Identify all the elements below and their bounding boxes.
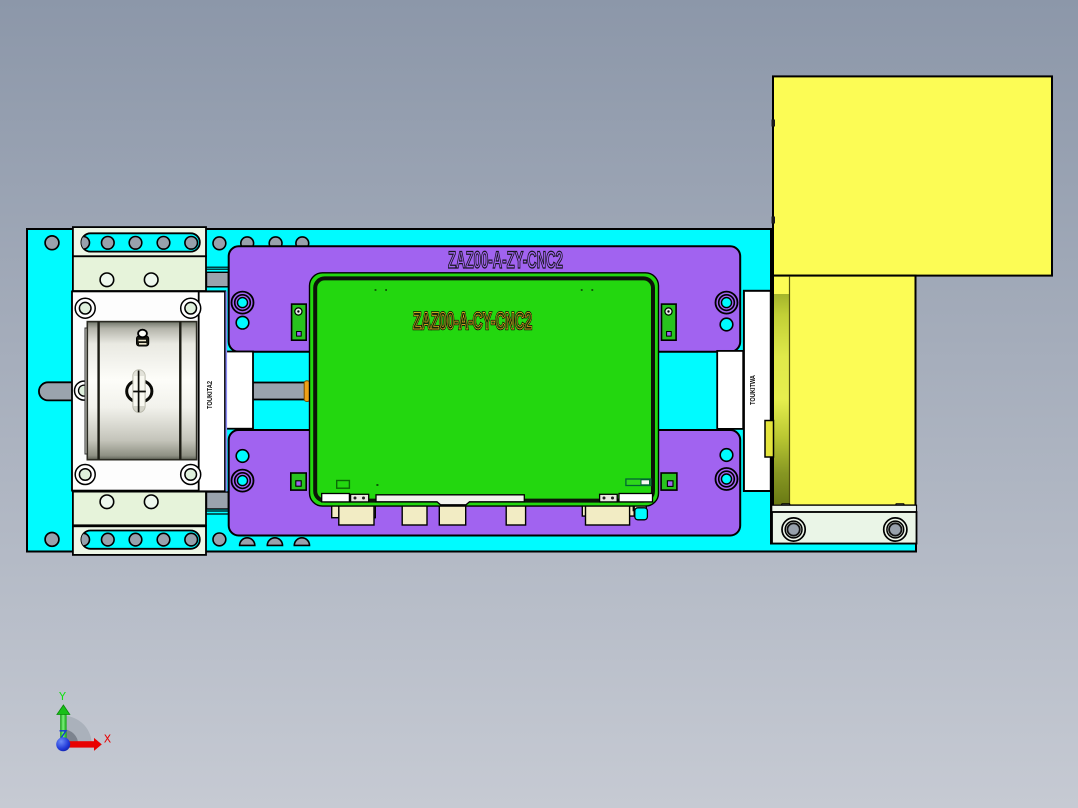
svg-text:TOUKITA2: TOUKITA2 [207, 381, 214, 409]
svg-text:Y: Y [59, 690, 66, 704]
svg-text:TOUKITWA: TOUKITWA [750, 375, 757, 405]
svg-text:ZAZ00-A-CY-CNC2: ZAZ00-A-CY-CNC2 [413, 308, 532, 335]
svg-text:ZAZ00-A-ZY-CNC2: ZAZ00-A-ZY-CNC2 [448, 247, 563, 274]
svg-text:X: X [104, 733, 111, 747]
